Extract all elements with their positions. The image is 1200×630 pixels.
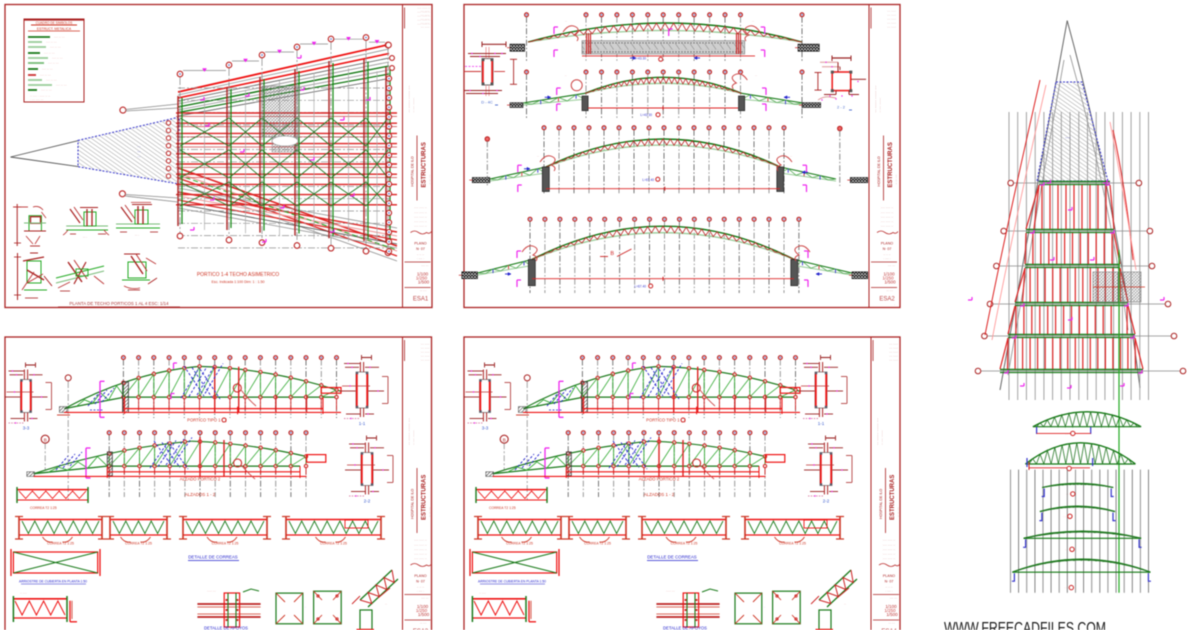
- svg-text:·· ··· ····: ·· ··· ····: [428, 174, 432, 184]
- svg-text:· ···· ·: · ···· ·: [417, 257, 424, 261]
- svg-text:ARRIOSTRE DE CUBIERTA EN PLANT: ARRIOSTRE DE CUBIERTA EN PLANTA 1:50: [478, 580, 546, 584]
- svg-text:ESA2: ESA2: [879, 297, 895, 303]
- svg-text:CORREA T2 1:25: CORREA T2 1:25: [489, 506, 516, 510]
- svg-text:· ·: · ·: [1064, 586, 1067, 590]
- svg-text:· ·: · ·: [1063, 514, 1066, 518]
- svg-text:DETALLE DE CORREAS: DETALLE DE CORREAS: [647, 555, 697, 560]
- svg-text:N· 07: N· 07: [883, 247, 892, 251]
- svg-text:· ·: · ·: [137, 145, 140, 149]
- svg-text:·· ··· ····: ·· ··· ····: [428, 507, 432, 517]
- svg-text:· ···· ·: · ···· ·: [885, 589, 892, 593]
- svg-text:···· ····· ··: ···· ····· ··: [414, 543, 427, 547]
- svg-text:···· ·· ···: ···· ·· ···: [50, 45, 61, 49]
- svg-text:···· ····· ··: ···· ····· ··: [883, 552, 896, 556]
- svg-text:PLANO: PLANO: [881, 242, 893, 246]
- svg-text:Esc. Indicada 1:100 Dim: 1 : 1: Esc. Indicada 1:100 Dim: 1 : 1.50: [212, 280, 265, 284]
- svg-text:···· ····· ··: ···· ····· ··: [881, 215, 894, 219]
- svg-text:PORTICO TIPO 1 (1): PORTICO TIPO 1 (1): [187, 418, 227, 423]
- svg-text:·· ···· ·······: ·· ···· ·······: [412, 430, 416, 445]
- svg-text:···· ·· ···: ···· ·· ···: [46, 40, 57, 44]
- svg-text:ALZADO PORTICO 2: ALZADO PORTICO 2: [180, 477, 221, 482]
- svg-text:ESTRUCT. METALICA: ESTRUCT. METALICA: [37, 27, 72, 31]
- svg-text:··: ··: [844, 602, 846, 606]
- svg-text:N· 07: N· 07: [416, 580, 425, 584]
- svg-text:DETALLE DE APOYOS: DETALLE DE APOYOS: [204, 626, 248, 630]
- svg-text:L=43.30: L=43.30: [640, 113, 652, 117]
- svg-text:· ·: · ·: [1061, 467, 1064, 471]
- svg-text:N· 07: N· 07: [416, 247, 425, 251]
- svg-text:··: ··: [565, 19, 567, 23]
- svg-text:1-1: 1-1: [359, 421, 366, 426]
- svg-text:PLANO: PLANO: [883, 574, 895, 578]
- svg-text:DETALLE DE APOYOS: DETALLE DE APOYOS: [663, 626, 707, 630]
- svg-text:1/500: 1/500: [884, 280, 896, 285]
- svg-text:····· ···: ····· ···: [207, 589, 216, 593]
- svg-text:HOSPITAL DE ILO: HOSPITAL DE ILO: [877, 156, 881, 186]
- svg-text:··· ·····: ··· ·····: [887, 25, 896, 29]
- svg-text:HOSPITAL DE ILO: HOSPITAL DE ILO: [411, 489, 415, 519]
- svg-text:·: ·: [305, 605, 306, 609]
- svg-text:·· ···· ·······: ·· ···· ·······: [880, 430, 884, 445]
- svg-text:PORTICO TIPO 1 (1): PORTICO TIPO 1 (1): [646, 418, 686, 423]
- svg-text:···· ····· ··: ···· ····· ··: [414, 211, 427, 215]
- svg-text:L=67.40: L=67.40: [634, 285, 646, 289]
- svg-text:ALZADOS 1 - 2: ALZADOS 1 - 2: [644, 492, 675, 497]
- svg-text:···· ·· ···: ···· ·· ···: [48, 61, 59, 65]
- svg-text:· ··· ···· ···: · ··· ···· ···: [30, 98, 44, 102]
- svg-text:PLANO: PLANO: [414, 574, 426, 578]
- svg-text:··· ····: ··· ····: [420, 290, 427, 293]
- svg-text:···· ·· ···: ···· ·· ···: [41, 88, 52, 92]
- svg-text:·: ·: [894, 304, 895, 307]
- svg-text:·· ··· ····: ·· ··· ····: [894, 174, 898, 184]
- svg-text:···· ····· ··: ···· ····· ··: [414, 538, 427, 542]
- svg-text:····· ···: ····· ···: [666, 589, 675, 593]
- svg-text:N· 07: N· 07: [885, 580, 894, 584]
- svg-text:··: ··: [755, 74, 757, 78]
- svg-text:3-3: 3-3: [23, 426, 30, 431]
- svg-text:···· ····· ··: ···· ····· ··: [881, 224, 894, 228]
- svg-text:· ·: · ·: [1065, 432, 1068, 436]
- svg-text:···· ·· ···: ···· ·· ···: [54, 35, 65, 39]
- svg-text:··: ··: [752, 19, 754, 23]
- svg-text:···· ····· ··: ···· ····· ··: [881, 206, 894, 210]
- svg-text:··· ····: ··· ····: [888, 622, 895, 625]
- svg-text:·: ·: [764, 605, 765, 609]
- svg-text:· ·: · ·: [137, 155, 140, 159]
- svg-text:ESA1: ESA1: [413, 297, 429, 303]
- svg-text:···· ····· ··: ···· ····· ··: [414, 220, 427, 224]
- svg-text:·: ·: [428, 304, 429, 307]
- svg-text:·· ···· ·······: ·· ···· ·······: [878, 98, 882, 113]
- svg-text:CUADRO DE SIMBOLOS: CUADRO DE SIMBOLOS: [36, 21, 73, 25]
- svg-text:D - 4C: D - 4C: [481, 100, 493, 105]
- svg-text:···· ····· ··: ···· ····· ··: [414, 548, 427, 552]
- svg-text:··: ··: [790, 154, 792, 158]
- svg-text:B: B: [503, 438, 506, 443]
- svg-text:··· ·····: ··· ·····: [421, 25, 430, 29]
- svg-text:···: ···: [137, 150, 140, 154]
- svg-text:··· ·····: ··· ·····: [889, 358, 898, 362]
- svg-text:··· ····: ··· ····: [420, 622, 427, 625]
- svg-text:···· ····· ··: ···· ····· ··: [881, 220, 894, 224]
- svg-text:···· ·· ···: ···· ·· ···: [40, 73, 51, 77]
- svg-text:PORTICO 1-4 TECHO ASIMETRICO: PORTICO 1-4 TECHO ASIMETRICO: [197, 272, 279, 278]
- svg-text:··· ·····: ··· ·····: [421, 358, 430, 362]
- svg-text:1/500: 1/500: [418, 612, 430, 617]
- svg-text:WWW.FREECADFILES.COM: WWW.FREECADFILES.COM: [944, 620, 1106, 630]
- svg-text:···· ·· ···: ···· ·· ···: [44, 51, 55, 55]
- svg-text:·· ····: ·· ····: [479, 591, 486, 595]
- svg-text:··: ··: [385, 602, 387, 606]
- svg-text:PLANO: PLANO: [414, 242, 426, 246]
- svg-text:1/500: 1/500: [886, 612, 898, 617]
- svg-text:2 - 2: 2 - 2: [837, 105, 846, 110]
- svg-text:B: B: [44, 438, 47, 443]
- svg-text:···· ····· ··: ···· ····· ··: [414, 215, 427, 219]
- svg-text:···· ····· ··: ···· ····· ··: [414, 224, 427, 228]
- svg-text:···· ····· ··: ···· ····· ··: [414, 557, 427, 561]
- svg-text:2-2: 2-2: [823, 499, 830, 504]
- svg-text:··: ··: [565, 74, 567, 78]
- svg-text:···· ····· ··: ···· ····· ··: [883, 543, 896, 547]
- svg-text:· ·: · ·: [1065, 547, 1068, 551]
- svg-text:··· ····: ··· ····: [886, 290, 893, 293]
- svg-text:···· ····· ··: ···· ····· ··: [414, 206, 427, 210]
- svg-text:···· ····· ··: ···· ····· ··: [881, 211, 894, 215]
- svg-text:L=67.40: L=67.40: [642, 178, 654, 182]
- svg-text:···· ···: ···· ···: [421, 264, 428, 268]
- svg-text:·· ···· ·······: ·· ···· ·······: [412, 98, 416, 113]
- svg-text:··· ·: ··· ·: [135, 233, 140, 237]
- svg-text:CORREA T2 1:25: CORREA T2 1:25: [30, 506, 57, 510]
- svg-text:2-2: 2-2: [364, 499, 371, 504]
- svg-text:B: B: [610, 251, 614, 257]
- svg-text:ALZADOS 1 - 2: ALZADOS 1 - 2: [185, 492, 216, 497]
- svg-text:·····: ·····: [1065, 136, 1071, 140]
- svg-text:ALZADO PORTICO 2: ALZADO PORTICO 2: [639, 477, 680, 482]
- svg-text:·· ····: ·· ····: [20, 591, 27, 595]
- svg-text:···· ····· ··: ···· ····· ··: [414, 552, 427, 556]
- svg-text:···· ···: ···· ···: [890, 596, 897, 600]
- svg-text:· ·: · ·: [1066, 492, 1069, 496]
- svg-text:··· ·: ··· ·: [83, 235, 88, 239]
- svg-text:·· ··· ····: ·· ··· ····: [896, 507, 900, 517]
- svg-text:···· ·· ···: ···· ·· ···: [46, 78, 57, 82]
- svg-text:1/500: 1/500: [418, 280, 430, 285]
- svg-text:···· ·· ···: ···· ·· ···: [52, 56, 63, 60]
- svg-text:PLANTA DE TECHO PORTICOS 1 AL: PLANTA DE TECHO PORTICOS 1 AL 4 ESC: 1/1…: [69, 301, 169, 306]
- svg-text:···· ·· ···: ···· ·· ···: [42, 67, 53, 71]
- svg-text:···· ····· ··: ···· ····· ··: [883, 557, 896, 561]
- svg-text:· ···· ·: · ···· ·: [417, 589, 424, 593]
- svg-text:· ···· ·: · ···· ·: [883, 257, 890, 261]
- svg-text:···· ····· ··: ···· ····· ··: [883, 538, 896, 542]
- svg-text:···· ·· ···: ···· ·· ···: [56, 83, 67, 87]
- svg-text:··: ··: [537, 154, 539, 158]
- svg-text:L=43.30: L=43.30: [634, 57, 646, 61]
- svg-text:1-1: 1-1: [818, 421, 825, 426]
- svg-text:···· ···: ···· ···: [888, 264, 895, 268]
- svg-text:HOSPITAL DE ILO: HOSPITAL DE ILO: [879, 489, 883, 519]
- svg-text:ARRIOSTRE DE CUBIERTA EN PLANT: ARRIOSTRE DE CUBIERTA EN PLANTA 1:50: [19, 580, 87, 584]
- svg-text:HOSPITAL DE ILO: HOSPITAL DE ILO: [411, 156, 415, 186]
- svg-text:···· ···: ···· ···: [421, 596, 428, 600]
- svg-text:3-3: 3-3: [482, 426, 489, 431]
- svg-text:···· ····· ··: ···· ····· ··: [883, 548, 896, 552]
- svg-text:DETALLE DE CORREAS: DETALLE DE CORREAS: [188, 555, 238, 560]
